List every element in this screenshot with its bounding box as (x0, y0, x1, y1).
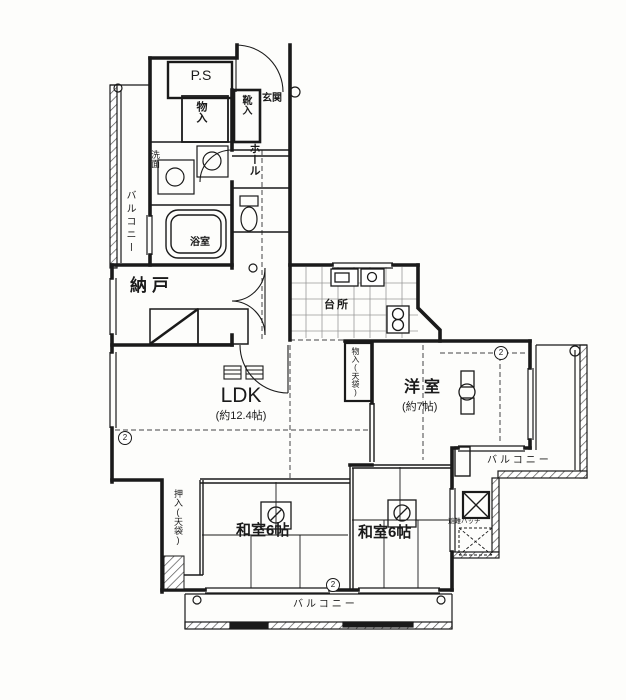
label-washroom: 洗面 (150, 150, 159, 168)
light-symbol-right-washitsu (388, 500, 416, 527)
marker-2-bottom: 2 (326, 578, 340, 592)
toilet (240, 196, 258, 231)
label-ldk: LDK (196, 385, 286, 406)
label-western-room-size: (約7帖) (402, 402, 437, 413)
label-closet-tenbukuro: 物入(天袋) (351, 347, 359, 397)
label-bathroom: 浴室 (190, 238, 210, 248)
label-balcony-left: バルコニー (124, 190, 134, 255)
label-storage-top: 物入 (195, 101, 206, 123)
label-ps: P.S (170, 68, 232, 82)
label-shoe-box: 靴入 (240, 95, 250, 115)
washbasin (158, 160, 194, 194)
label-ldk-size: (約12.4帖) (186, 411, 296, 422)
label-hall: ホール (248, 143, 259, 176)
label-kitchen: 台所 (324, 300, 350, 311)
floor-plan-drawing (0, 0, 626, 700)
kitchen-sink-counter (331, 269, 384, 286)
label-escape-hatch: 避難ハッチ (448, 519, 481, 526)
label-oshiire: 押入(天袋) (173, 489, 182, 545)
label-balcony-bottom: バルコニー (293, 600, 358, 610)
marker-2-left-wall: 2 (118, 431, 132, 445)
floor-plan-page: P.S 物入 靴入 玄関 ホール 洗面 浴室 納戸 台所 LDK (約12.4帖… (0, 0, 626, 700)
kitchen-stove (387, 306, 409, 333)
label-japanese-room-left: 和室6帖 (236, 523, 289, 538)
corner-hatch-box (164, 556, 184, 589)
label-balcony-right: バルコニー (487, 456, 552, 466)
marker-2-west: 2 (494, 346, 508, 360)
dining-table-icon (224, 366, 263, 379)
label-entrance: 玄関 (262, 94, 282, 104)
label-japanese-room-right: 和室6帖 (358, 525, 411, 540)
bathtub (166, 210, 226, 258)
light-symbol-western-room (459, 371, 475, 414)
interior-partitions (150, 142, 452, 590)
label-western-room: 洋室 (404, 380, 444, 396)
dashed-grid-lines (115, 150, 528, 478)
label-storeroom: 納戸 (130, 277, 174, 294)
